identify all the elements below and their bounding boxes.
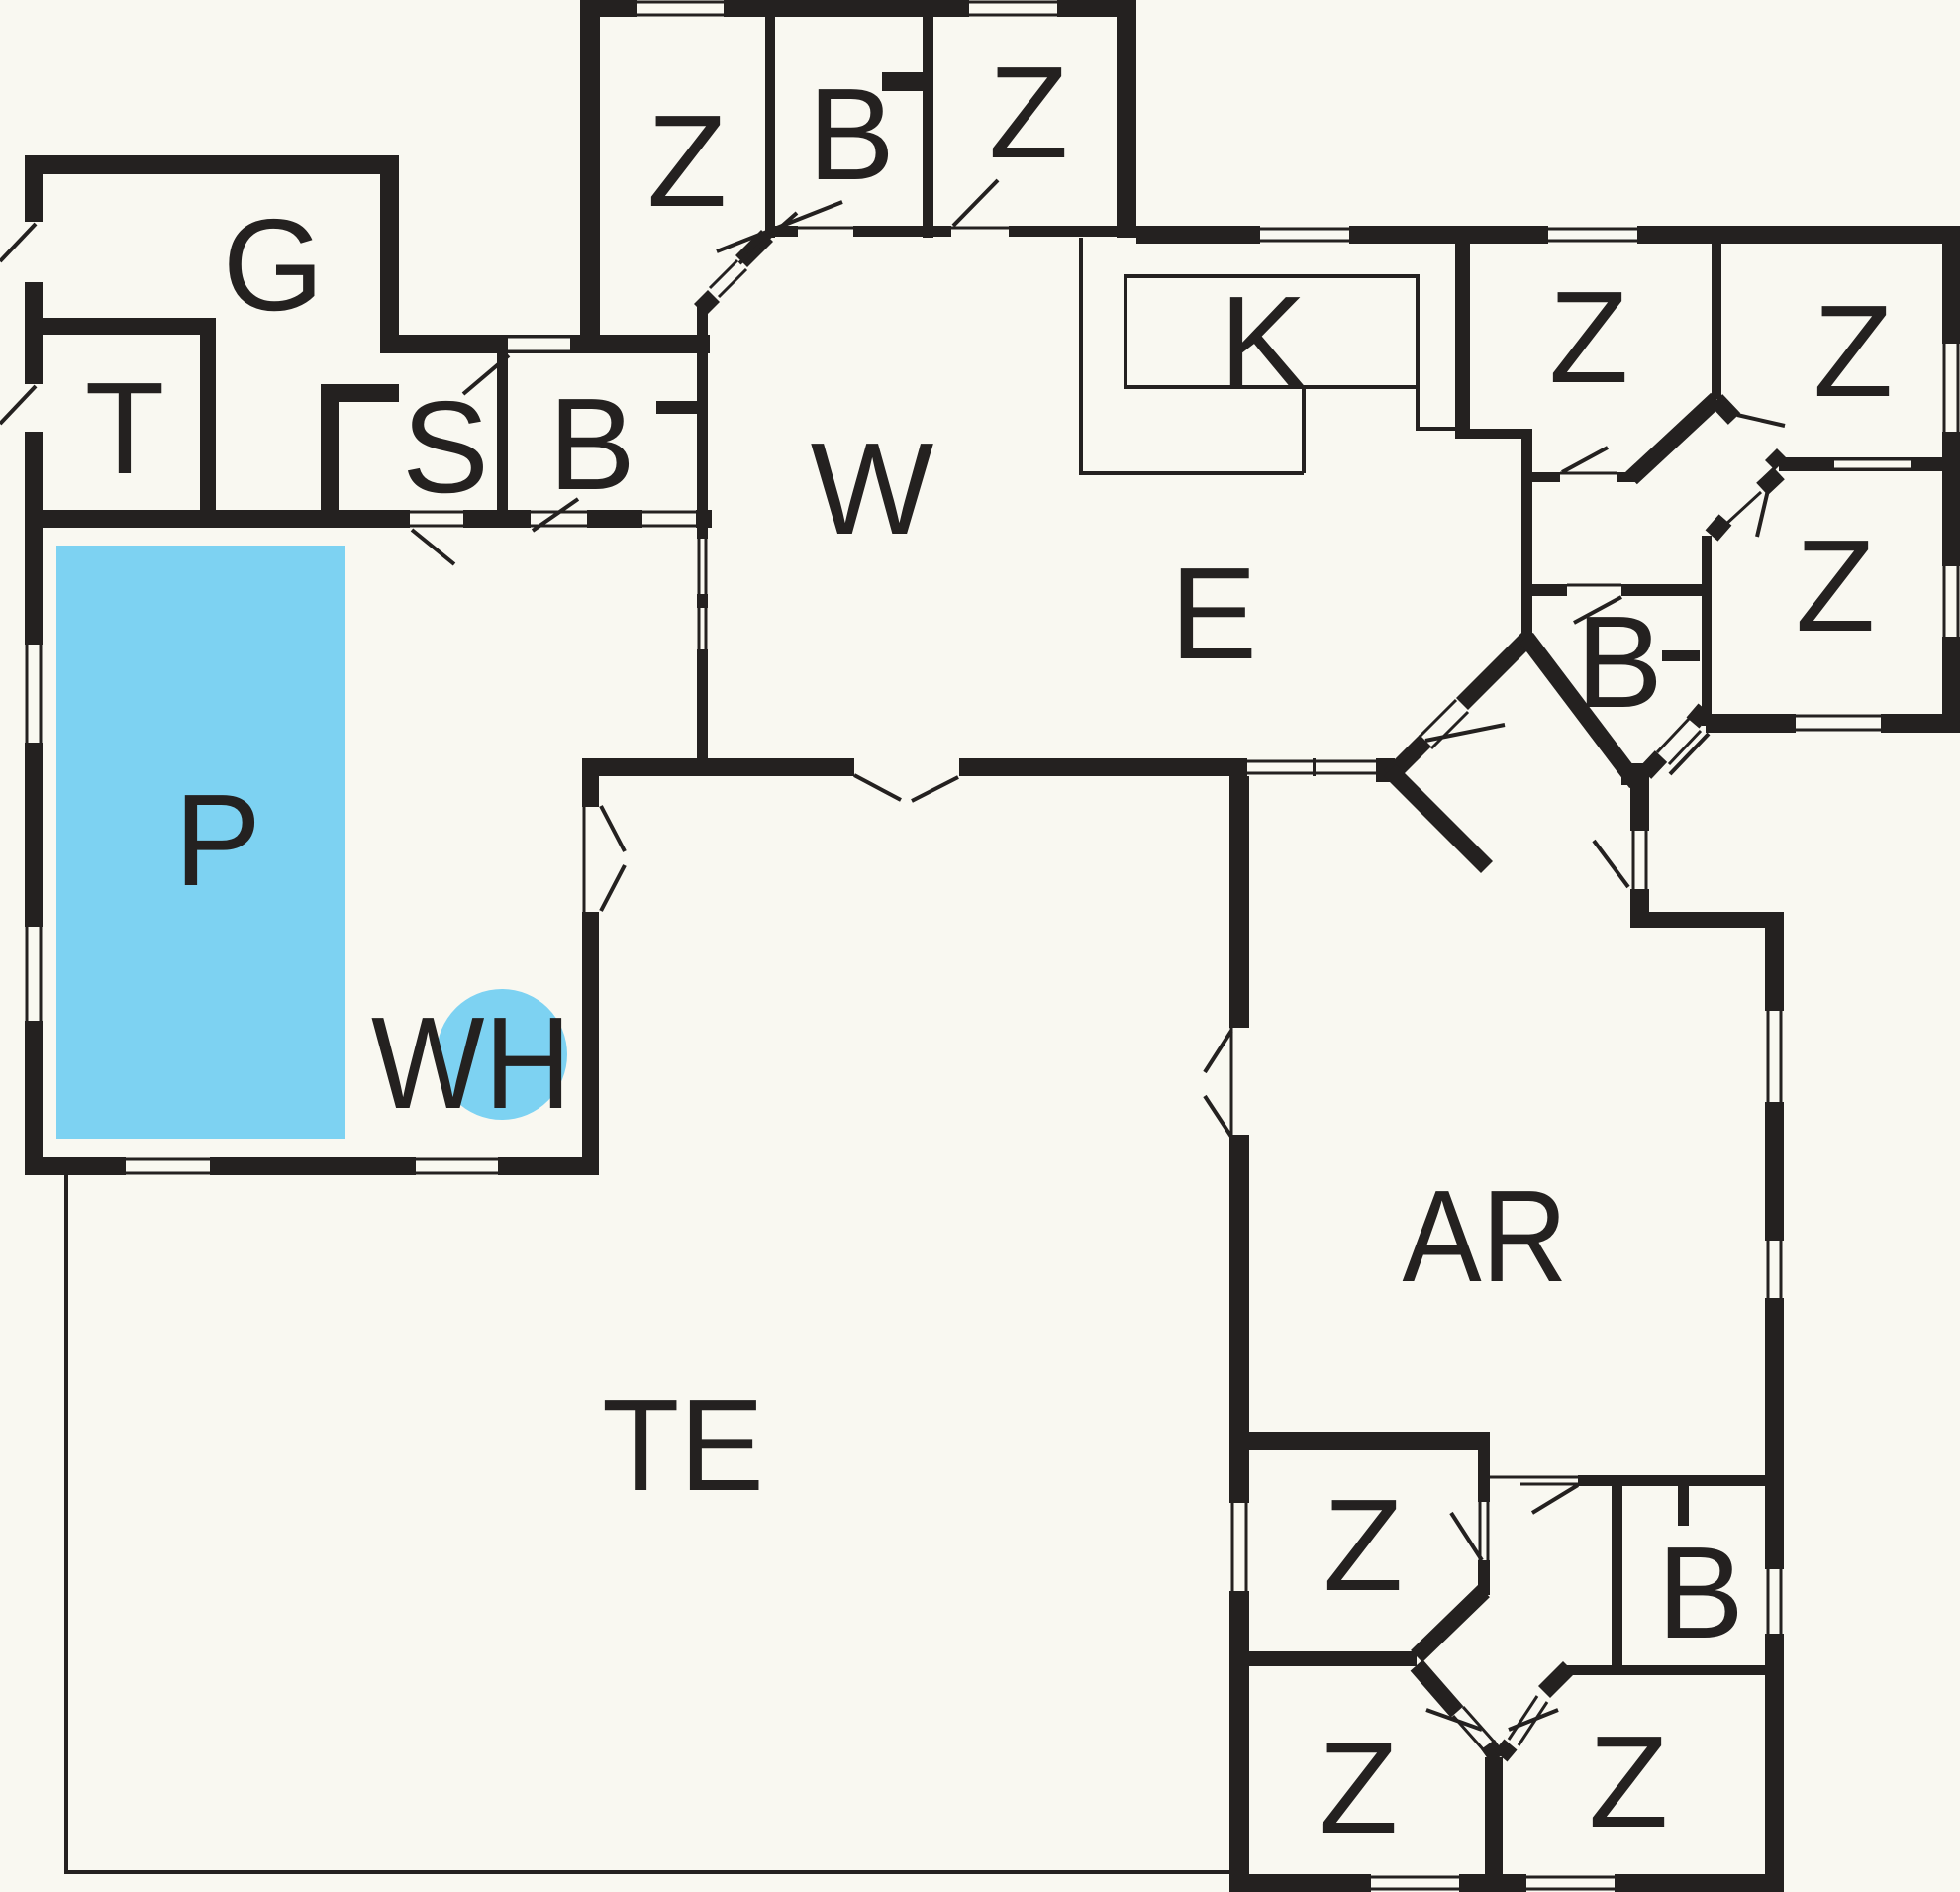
svg-text:Z: Z	[1319, 1715, 1399, 1860]
svg-text:B: B	[1657, 1520, 1744, 1665]
svg-text:Z: Z	[1796, 513, 1876, 658]
svg-text:B: B	[1576, 589, 1663, 735]
svg-text:B: B	[548, 371, 636, 517]
svg-text:P: P	[174, 767, 261, 913]
svg-text:T: T	[85, 355, 165, 501]
svg-text:Z: Z	[1323, 1472, 1404, 1618]
svg-text:K: K	[1220, 269, 1307, 415]
svg-text:Z: Z	[1813, 278, 1894, 424]
svg-text:Z: Z	[1589, 1709, 1669, 1854]
svg-text:Z: Z	[989, 40, 1069, 185]
svg-text:Z: Z	[1549, 264, 1629, 410]
svg-text:S: S	[402, 374, 489, 520]
svg-text:AR: AR	[1403, 1163, 1568, 1309]
svg-text:TE: TE	[602, 1372, 764, 1518]
svg-text:E: E	[1170, 541, 1257, 686]
svg-text:W: W	[811, 416, 934, 561]
svg-text:B: B	[808, 61, 895, 207]
svg-text:G: G	[223, 192, 325, 338]
svg-text:Z: Z	[647, 88, 728, 234]
svg-text:WH: WH	[371, 990, 571, 1136]
